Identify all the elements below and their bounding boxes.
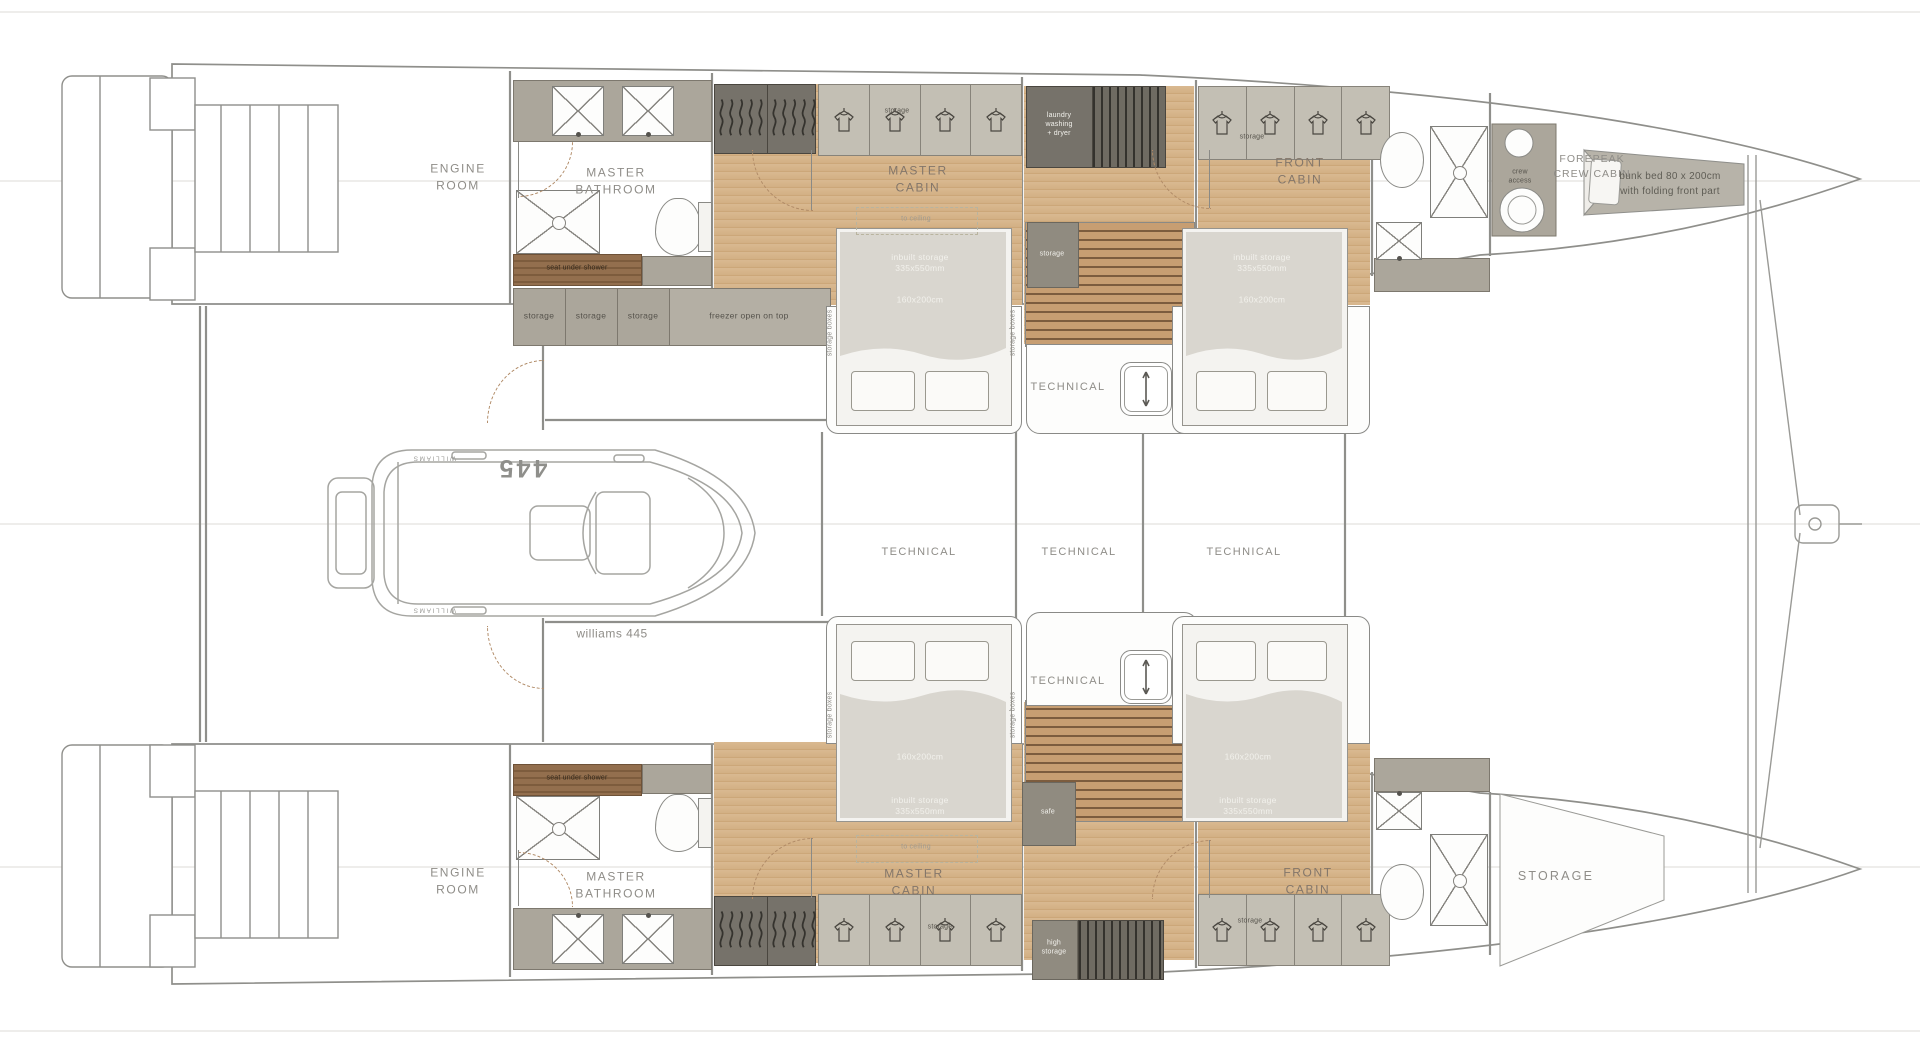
storage-locker (565, 288, 619, 346)
storage-locker (617, 288, 671, 346)
master-bed-port (836, 228, 1012, 426)
shirt-lockers-stbd-master (818, 894, 1022, 966)
toilet-icon (655, 198, 702, 256)
to-ceiling-w wardrobe-outline (856, 207, 978, 235)
bathroom-counter-stbd (513, 908, 712, 970)
to-ceiling-wardrobe-outline (856, 835, 978, 863)
bathroom-shelf-bow-port (1374, 258, 1490, 292)
louver-hatch-stbd (1078, 920, 1164, 980)
wardrobe-hanging-port-master (714, 84, 816, 154)
safe-box (1022, 782, 1076, 846)
shirt-icon (1294, 895, 1342, 965)
shirt-icon (920, 85, 971, 155)
floor-plan: seat under shower storage storage storag… (0, 0, 1920, 1043)
shower-seat-strip (513, 254, 642, 286)
sink-icon (552, 86, 604, 136)
door-leaf (542, 360, 543, 422)
shirt-icon (1199, 87, 1246, 159)
shirt-icon (1246, 895, 1294, 965)
shirt-icon (970, 895, 1021, 965)
shirt-icon (1246, 87, 1294, 159)
front-bed-stbd (1182, 624, 1348, 822)
washbasin-icon (1380, 864, 1424, 920)
sink-icon (552, 914, 604, 964)
toilet-tank (698, 202, 712, 252)
shirt-icon (1199, 895, 1246, 965)
shirt-icon (920, 895, 971, 965)
freezer-locker (669, 288, 831, 346)
shirt-icon (1294, 87, 1342, 159)
door-leaf (1209, 840, 1210, 898)
shirt-icon (869, 85, 920, 155)
washbasin-icon (1380, 132, 1424, 188)
bathroom-shelf-port (642, 256, 712, 286)
sink-icon (1376, 792, 1422, 830)
bathroom-counter-port (513, 80, 712, 142)
shirt-icon (970, 85, 1021, 155)
bathroom-shelf-bow-stbd (1374, 758, 1490, 792)
wardrobe-hanging-stbd-master (714, 896, 816, 966)
door-leaf (811, 838, 812, 898)
door-leaf (811, 150, 812, 210)
shower-icon (516, 190, 600, 254)
mast-step-icon (1120, 362, 1172, 416)
toilet-tank (698, 798, 712, 848)
high-storage-box (1032, 920, 1078, 980)
shower-seat-strip (513, 764, 642, 796)
stair-storage-box (1027, 222, 1079, 288)
shower-icon (1430, 126, 1488, 218)
sink-icon (1376, 222, 1422, 260)
crew-cabin-fixtures (1492, 124, 1556, 236)
front-bed-port (1182, 228, 1348, 426)
door-leaf (518, 850, 519, 906)
shower-icon (516, 796, 600, 860)
shower-icon (1430, 834, 1488, 926)
shirt-lockers-port-front (1198, 86, 1390, 160)
door-leaf (542, 626, 543, 688)
hangers-icon (715, 85, 767, 153)
tender-drawing (328, 450, 755, 616)
shirt-icon (869, 895, 920, 965)
hangers-icon (767, 897, 820, 965)
toilet-icon (655, 794, 702, 852)
hangers-icon (715, 897, 767, 965)
shirt-lockers-stbd-front (1198, 894, 1390, 966)
storage-locker (513, 288, 567, 346)
shirt-lockers-port-master (818, 84, 1022, 156)
sink-icon (622, 86, 674, 136)
sink-icon (622, 914, 674, 964)
shirt-icon (819, 895, 869, 965)
mast-step-icon (1120, 650, 1172, 704)
door-leaf (1209, 150, 1210, 208)
laundry-unit (1026, 86, 1094, 168)
shirt-icon (819, 85, 869, 155)
bathroom-shelf-stbd (642, 764, 712, 794)
hangers-icon (767, 85, 820, 153)
door-leaf (518, 142, 519, 198)
master-bed-stbd (836, 624, 1012, 822)
